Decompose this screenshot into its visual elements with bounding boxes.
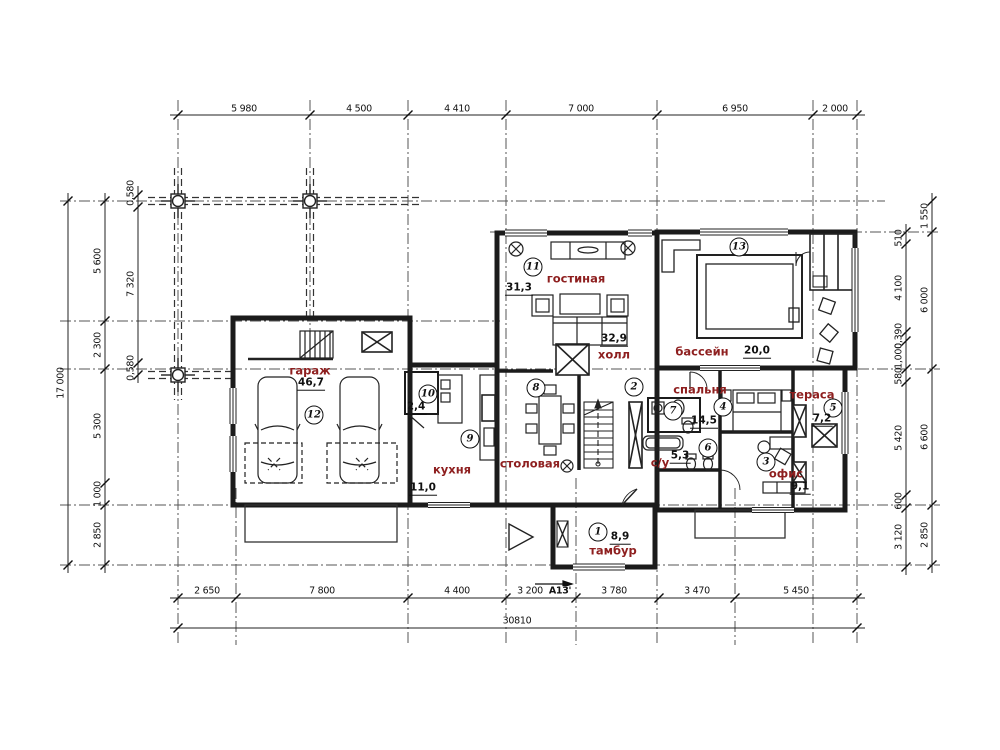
- room-area-garage: 46,7: [297, 378, 325, 391]
- room-label-terrace: тераса: [789, 389, 834, 401]
- room-label-vestibule: тамбур: [589, 545, 637, 557]
- pool-ladder: [789, 308, 799, 322]
- dim-right-inner-1: 4 100: [894, 275, 904, 301]
- dim-bottom-total: 30810: [502, 616, 533, 626]
- hall-stairs: [584, 400, 613, 468]
- dim-left-3: 1 000: [93, 481, 103, 507]
- shower-cabin: [796, 234, 855, 290]
- dim-right-inner-6: 600: [894, 492, 904, 509]
- dim-left-0: 5 600: [93, 248, 103, 274]
- garage-furniture: [245, 331, 397, 483]
- pergola-beams: [148, 168, 420, 400]
- entry-arrow: [509, 524, 533, 550]
- room-number-bedroom: 4: [714, 398, 733, 417]
- dim-beam-0: 0,580: [126, 180, 136, 206]
- car: [255, 377, 300, 483]
- dim-top-2: 4 410: [443, 104, 471, 114]
- entry-door: [557, 521, 568, 547]
- room-label-garage: гараж: [289, 365, 330, 377]
- room-area-kitchen: 11,0: [409, 483, 437, 496]
- room-number-hall: 2: [625, 378, 644, 397]
- pergola-columns: [161, 184, 327, 392]
- section-mark-label: А13': [548, 586, 572, 596]
- dim-left-1: 2 300: [93, 332, 103, 358]
- bench: [662, 240, 700, 272]
- dim-right-inner-3: 1,000: [894, 343, 904, 369]
- office-chair: [758, 441, 770, 453]
- dim-bottom-2: 4 400: [443, 586, 471, 596]
- dim-right-outer-0: 1 550: [920, 203, 930, 229]
- desk: [770, 437, 792, 449]
- stepping-stones: [817, 298, 838, 364]
- plant: [509, 242, 523, 256]
- dim-right-outer-3: 2 850: [920, 522, 930, 548]
- dim-right-inner-5: 5 420: [894, 425, 904, 451]
- tv-cabinet: [551, 242, 625, 259]
- room-area-terrace: 7,2: [812, 414, 833, 427]
- dim-bottom-1: 7 800: [308, 586, 336, 596]
- floor-plan-page: 5 980 4 500 4 410 7 000 6 950 2 000 2 65…: [0, 0, 1000, 750]
- room-number-garage: 12: [305, 406, 324, 425]
- dim-bottom-0: 2 650: [193, 586, 221, 596]
- room-number-dining: 8: [527, 379, 546, 398]
- room-number-kitchen: 9: [461, 430, 480, 449]
- room-label-hall: холл: [598, 349, 630, 361]
- plant: [621, 241, 635, 255]
- room-area-bedroom: 14,5: [690, 416, 718, 429]
- room-number-pool: 13: [730, 238, 749, 257]
- dim-bottom-3: 3 200: [516, 586, 544, 596]
- dim-bottom-4: 3 780: [600, 586, 628, 596]
- dim-left-4: 2 850: [93, 522, 103, 548]
- room-area-wc: 5,3: [670, 451, 691, 464]
- room-label-living: гостиная: [547, 273, 606, 285]
- room-area-pantry: 2,4: [406, 402, 427, 415]
- dim-top-3: 7 000: [567, 104, 595, 114]
- coffee-table: [560, 294, 600, 314]
- room-label-office: офис: [769, 468, 803, 480]
- room-label-kitchen: кухня: [433, 464, 471, 476]
- dim-top-4: 6 950: [721, 104, 749, 114]
- room-number-wc: 7: [664, 402, 683, 421]
- bed: [733, 390, 781, 432]
- dim-left-2: 5 300: [93, 413, 103, 439]
- dim-right-inner-7: 3 120: [894, 524, 904, 550]
- dim-top-0: 5 980: [230, 104, 258, 114]
- plant: [561, 460, 573, 472]
- driveway-apron: [245, 505, 785, 542]
- floor-plan-drawing: [0, 0, 1000, 750]
- room-area-office: 9,1: [790, 482, 811, 495]
- dim-beam-2: 0,580: [126, 355, 136, 381]
- room-label-dining: столовая: [500, 458, 560, 470]
- room-area-hall: 32,9: [600, 334, 628, 347]
- dim-right-inner-0: 510: [894, 229, 904, 246]
- room-label-pool: бассейн: [675, 346, 728, 358]
- dim-right-outer-1: 6 000: [920, 287, 930, 313]
- room-number-bath2: 6: [699, 439, 718, 458]
- room-label-bedroom: спальня: [673, 384, 727, 396]
- room-label-wc: с/у: [651, 457, 670, 469]
- dim-right-inner-4: 580: [894, 367, 904, 384]
- garage-stairs: [300, 331, 333, 358]
- dim-beam-1: 7 320: [126, 271, 136, 297]
- windows: [230, 229, 859, 571]
- room-number-living: 11: [524, 258, 543, 277]
- room-number-vestibule: 1: [589, 523, 608, 542]
- exterior-walls: [233, 232, 855, 567]
- room-area-pool: 20,0: [743, 346, 771, 359]
- dim-top-1: 4 500: [345, 104, 373, 114]
- dim-bottom-6: 5 450: [782, 586, 810, 596]
- armchair: [607, 295, 628, 316]
- armchair: [532, 295, 553, 316]
- dim-right-outer-2: 6 600: [920, 424, 930, 450]
- room-area-living: 31,3: [505, 283, 533, 296]
- dim-top-5: 2 000: [821, 104, 849, 114]
- dim-left-total: 17 000: [56, 367, 66, 398]
- dim-bottom-5: 3 470: [683, 586, 711, 596]
